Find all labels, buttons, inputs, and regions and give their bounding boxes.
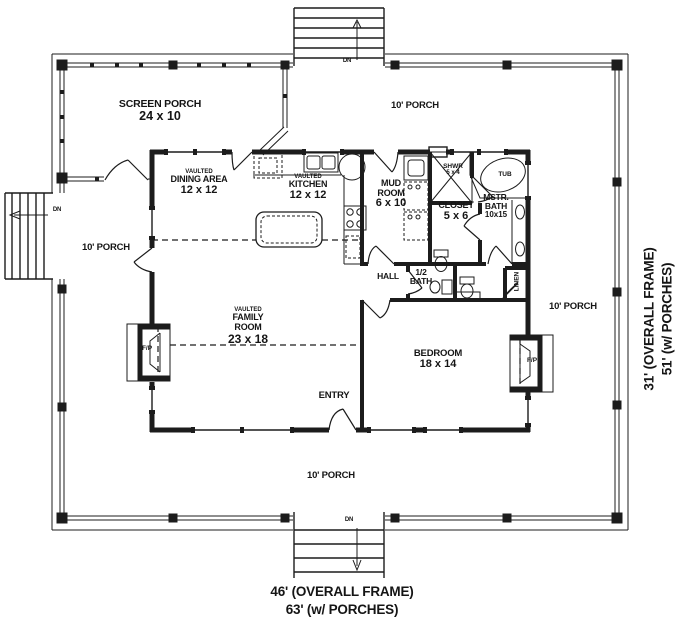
stairs-dn-label-top: DN xyxy=(338,58,356,64)
room-label-entry: ENTRY xyxy=(304,391,364,401)
porch-label-left: 10' PORCH xyxy=(61,243,151,253)
porch-railing xyxy=(60,63,619,520)
room-label-master-bath: MSTR. BATH 10x15 xyxy=(474,193,518,220)
dimension-text-bottom: 46' (OVERALL FRAME) 63' (w/ PORCHES) xyxy=(222,583,462,619)
room-label-kitchen: VAULTED KITCHEN 12 x 12 xyxy=(273,174,343,202)
porch-posts xyxy=(57,60,623,524)
plan-drawing xyxy=(0,0,680,626)
porch-label-right: 10' PORCH xyxy=(528,302,618,312)
room-label-family-room: VAULTED FAMILY ROOM 23 x 18 xyxy=(218,307,278,346)
room-label-hall: HALL xyxy=(368,272,408,281)
porch-outer-boundary xyxy=(52,54,628,530)
fireplace-left xyxy=(127,324,170,381)
stairs-dn-label-bottom: DN xyxy=(340,517,358,523)
porch-label-top: 10' PORCH xyxy=(370,101,460,111)
stairs-bottom xyxy=(294,512,384,578)
stairs-left xyxy=(5,193,53,279)
fireplace-label-left: F/P xyxy=(137,345,157,352)
floor-plan: SCREEN PORCH 24 x 10 10' PORCH 10' PORCH… xyxy=(0,0,680,626)
porch-label-bottom: 10' PORCH xyxy=(286,471,376,481)
fireplace-label-right: F/P xyxy=(522,357,542,364)
kitchen-sink xyxy=(304,153,338,172)
stairs-dn-label-left: DN xyxy=(48,207,66,213)
room-label-linen: LINEN xyxy=(513,267,520,297)
dimension-text-right: 31' (OVERALL FRAME) 51' (w/ PORCHES) xyxy=(641,227,677,412)
room-label-shower: SHWR 5 x 4 xyxy=(436,163,470,176)
room-label-half-bath: 1/2 BATH xyxy=(404,268,438,286)
room-label-tub: TUB xyxy=(490,171,520,178)
kitchen-island xyxy=(256,212,322,247)
room-label-mud-room: MUD ROOM 6 x 10 xyxy=(370,179,412,210)
shower-fixture xyxy=(430,152,472,203)
room-label-screen-porch: SCREEN PORCH 24 x 10 xyxy=(95,99,225,124)
toilet-wc xyxy=(456,277,480,300)
room-label-dining: VAULTED DINING AREA 12 x 12 xyxy=(156,169,242,197)
room-label-bedroom: BEDROOM 18 x 14 xyxy=(403,349,473,371)
